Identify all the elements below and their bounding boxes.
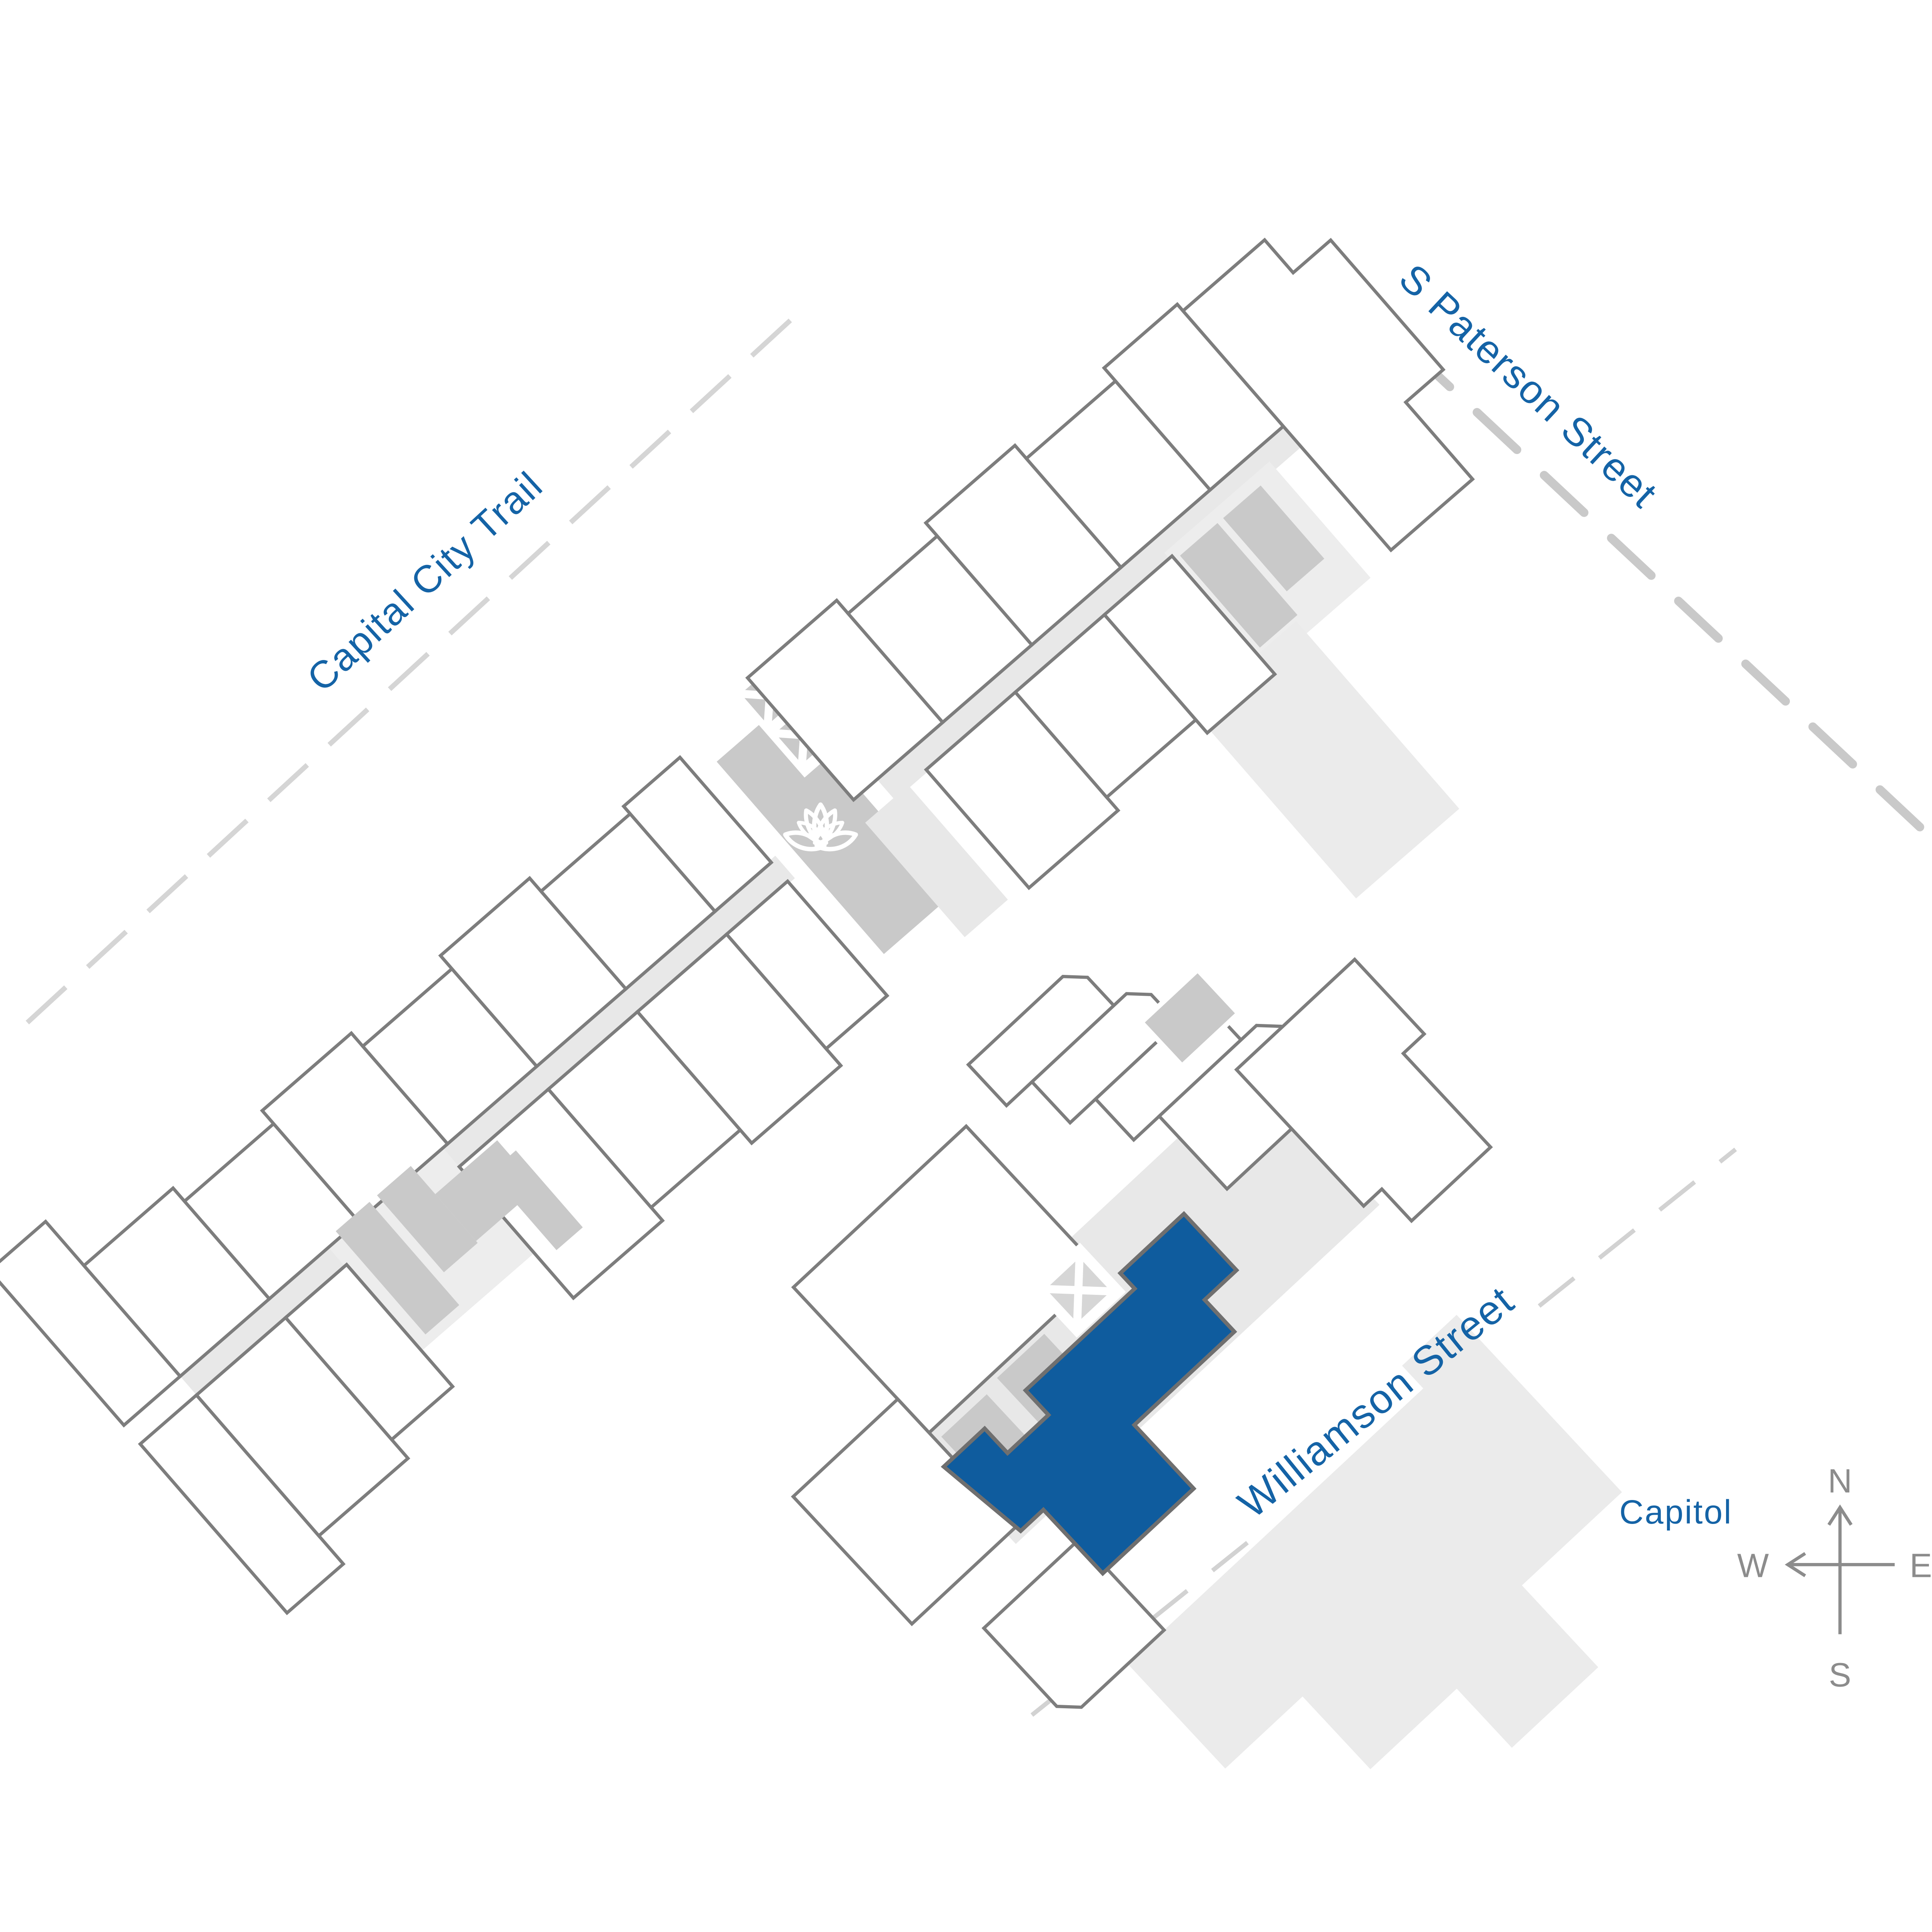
- site-plan-canvas: Capital City Trail S Paterson Street Wil…: [0, 0, 1932, 1932]
- compass-label-south: S: [1829, 1656, 1851, 1694]
- landmark-label-capitol: Capitol: [1619, 1493, 1733, 1531]
- compass-label-west: W: [1737, 1547, 1769, 1584]
- compass-label-north: N: [1828, 1463, 1852, 1500]
- williamson-street-dashed-line: [1539, 1150, 1735, 1306]
- compass-rose: [1788, 1507, 1895, 1634]
- compass-label-east: E: [1910, 1547, 1932, 1584]
- unit: [984, 1539, 1164, 1719]
- street-label-capital-city-trail: Capital City Trail: [299, 463, 551, 700]
- north-building: [743, 201, 1667, 1109]
- site-plan-page: Capital City Trail S Paterson Street Wil…: [0, 0, 1932, 1932]
